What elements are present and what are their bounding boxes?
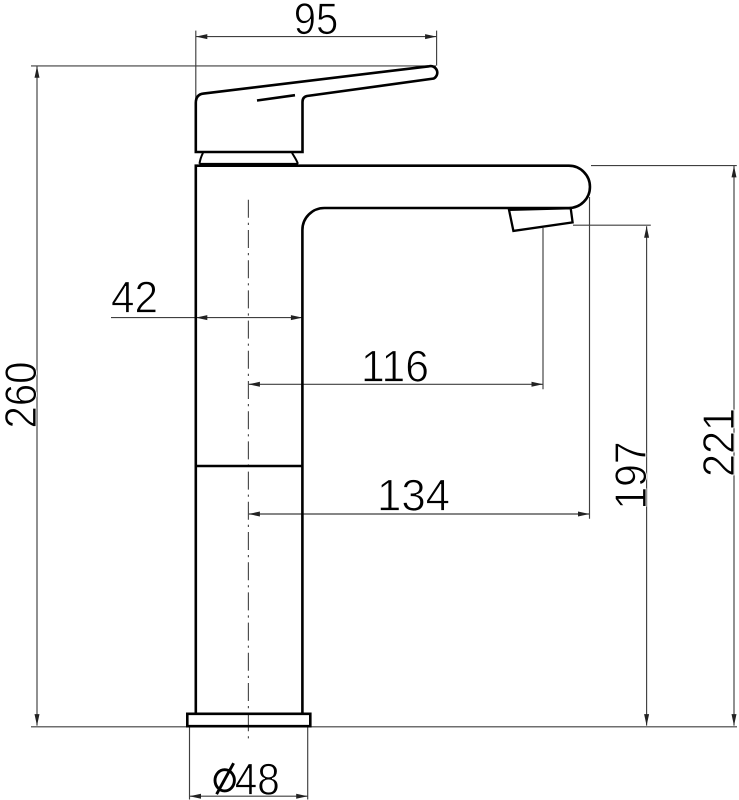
svg-text:116: 116 xyxy=(361,343,429,392)
svg-text:197: 197 xyxy=(607,442,656,510)
svg-text:260: 260 xyxy=(0,362,46,429)
svg-text:95: 95 xyxy=(294,0,339,44)
svg-text:48: 48 xyxy=(235,756,280,800)
svg-text:134: 134 xyxy=(377,472,450,521)
svg-text:42: 42 xyxy=(111,273,158,322)
svg-text:221: 221 xyxy=(695,408,739,477)
